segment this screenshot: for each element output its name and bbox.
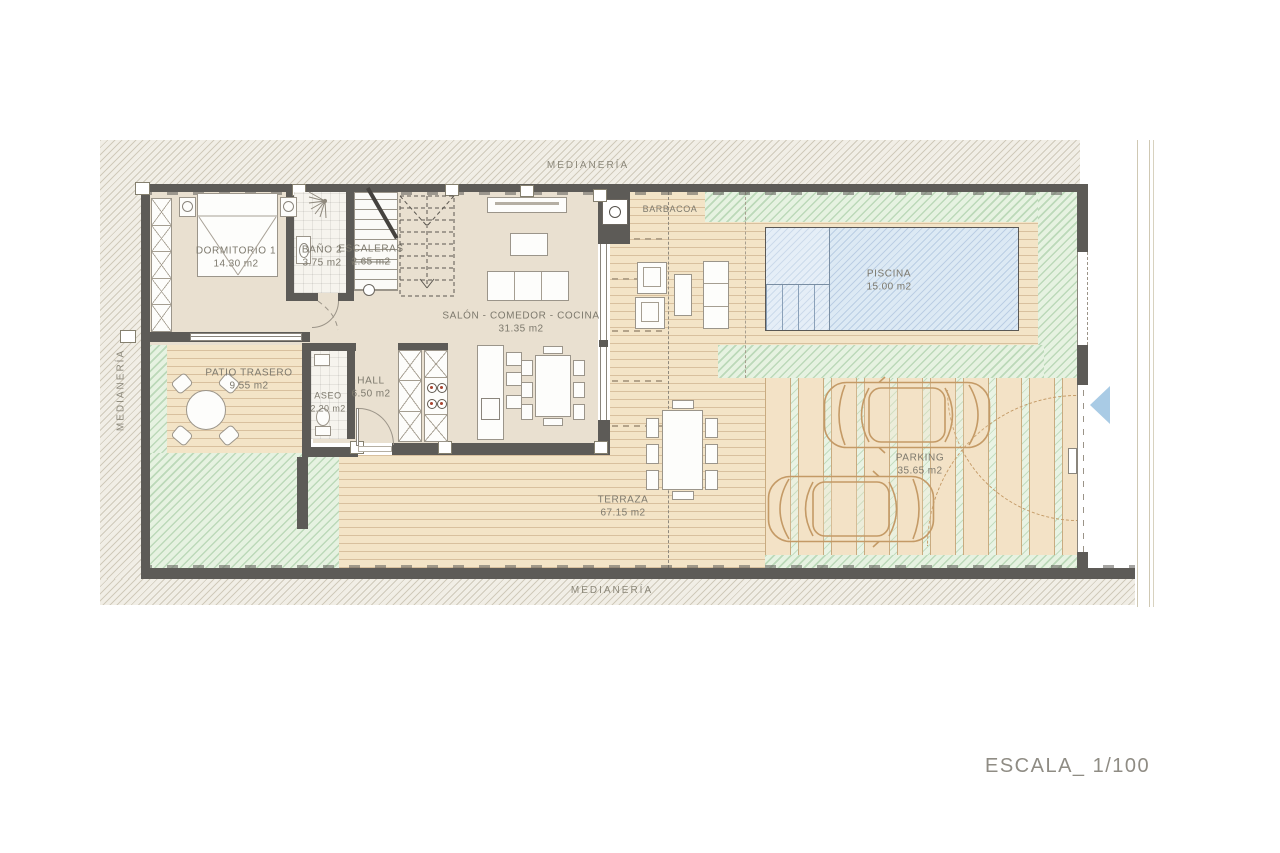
- wardrobe: [151, 198, 172, 332]
- floor-plan-canvas: DORMITORIO 1 14.30 m2 BAÑO 2 3.75 m2 ESC…: [0, 0, 1280, 853]
- room-name: PARKING: [896, 453, 944, 466]
- barbacoa-unit: [602, 199, 628, 225]
- room-label-escaleras: ESCALERAS 2.65 m2: [338, 244, 403, 269]
- room-area: 3.75 m2: [302, 257, 342, 270]
- wall-left: [141, 184, 150, 578]
- bar-stool: [506, 395, 522, 409]
- wardrobe-cell: [152, 305, 171, 331]
- outdoor-chair: [672, 400, 694, 409]
- room-label-hall: HALL 6.50 m2: [352, 376, 391, 401]
- room-label-aseo: ASEO 2.20 m2: [310, 390, 345, 415]
- wall-patio-spur: [297, 457, 308, 529]
- room-label-barbacoa: BARBACOA: [643, 203, 698, 216]
- kitchen-column: [424, 350, 448, 442]
- outdoor-chair: [705, 418, 718, 438]
- wall-bano-bottom: [286, 293, 318, 301]
- cabinet-cell: [399, 412, 421, 441]
- lounge-chair: [637, 262, 667, 294]
- room-label-salon: SALÓN - COMEDOR - COCINA 31.35 m2: [442, 311, 599, 336]
- garden-strip-top: [705, 192, 1077, 222]
- room-area: 67.15 m2: [598, 507, 649, 520]
- room-name: BAÑO 2: [302, 245, 342, 258]
- outdoor-dining-table: [662, 410, 703, 490]
- outdoor-chair: [672, 491, 694, 500]
- bar-stool: [506, 372, 522, 386]
- room-name: DORMITORIO 1: [196, 246, 276, 259]
- lamp-icon: [283, 201, 294, 212]
- room-area: 15.00 m2: [867, 281, 912, 294]
- toilet-tank: [315, 426, 331, 436]
- pool-shallow-zone: [766, 228, 830, 330]
- lamp-icon: [182, 201, 193, 212]
- room-name: BARBACOA: [643, 203, 698, 216]
- room-name: ESCALERAS: [338, 244, 403, 257]
- sofa: [487, 271, 569, 301]
- wall-bottom: [141, 568, 1135, 579]
- room-name: SALÓN - COMEDOR - COCINA: [442, 311, 599, 324]
- dining-chair: [543, 418, 563, 426]
- pillar: [593, 189, 607, 202]
- dining-chair: [573, 404, 585, 420]
- room-label-piscina: PISCINA 15.00 m2: [867, 269, 912, 294]
- parking-gate: [1077, 385, 1088, 552]
- room-label-terraza: TERRAZA 67.15 m2: [598, 495, 649, 520]
- outdoor-chair: [705, 444, 718, 464]
- dining-chair: [521, 360, 533, 376]
- garden-french-door: [1077, 252, 1088, 345]
- wall-kitchen-cap: [398, 343, 448, 350]
- nightstand: [179, 197, 196, 217]
- cabinet-cell: [425, 415, 447, 441]
- burner-icon: [437, 383, 447, 393]
- garden-strip-below-pool: [718, 345, 1044, 378]
- glass-mullion: [599, 340, 608, 347]
- room-name: PATIO TRASERO: [205, 368, 292, 381]
- glass-wall: [600, 244, 607, 420]
- wall-right-mid: [1077, 345, 1088, 385]
- dining-chair: [521, 404, 533, 420]
- cabinet-cell: [425, 351, 447, 378]
- wall-right-lower: [1077, 552, 1088, 568]
- entrance-arrow-icon: [1090, 386, 1110, 424]
- stove: [425, 378, 447, 415]
- wall-right-upper: [1077, 184, 1088, 252]
- deck-joint-line: [668, 192, 669, 568]
- coffee-table: [510, 233, 548, 256]
- kitchen-island: [477, 345, 504, 440]
- room-name: HALL: [352, 376, 391, 389]
- dining-chair: [573, 360, 585, 376]
- boundary-label-bottom: MEDIANERÍA: [571, 585, 653, 596]
- room-area: 14.30 m2: [196, 258, 276, 271]
- scale-label: ESCALA_ 1/100: [985, 755, 1150, 778]
- boundary-label-left: MEDIANERÍA: [116, 349, 127, 431]
- outdoor-chair: [646, 444, 659, 464]
- outdoor-chair: [646, 418, 659, 438]
- room-label-dormitorio1: DORMITORIO 1 14.30 m2: [196, 246, 276, 271]
- room-name: TERRAZA: [598, 495, 649, 508]
- tv-unit: [487, 197, 567, 213]
- pillar: [135, 182, 150, 195]
- dining-chair: [543, 346, 563, 354]
- room-area: 2.20 m2: [310, 402, 345, 415]
- room-area: 35.65 m2: [896, 465, 944, 478]
- room-name: ASEO: [310, 390, 345, 403]
- burner-icon: [427, 383, 437, 393]
- stairs-reference-circle: [363, 284, 375, 296]
- barbacoa-ring-icon: [609, 206, 621, 218]
- pillar: [445, 184, 459, 196]
- lot-boundary-line: [1153, 140, 1154, 607]
- outdoor-chair: [646, 470, 659, 490]
- room-label-parking: PARKING 35.65 m2: [896, 453, 944, 478]
- lounge-table: [674, 274, 692, 316]
- room-area: 31.35 m2: [442, 323, 599, 336]
- pillar: [520, 185, 534, 197]
- terraza-deck-south: [339, 455, 610, 568]
- boundary-label-top: MEDIANERÍA: [547, 160, 629, 171]
- lounge-chair: [635, 297, 665, 329]
- deck-joint-mark: [612, 380, 662, 382]
- cabinet-cell: [399, 351, 421, 381]
- dining-table: [535, 355, 571, 417]
- wall-south: [392, 443, 610, 455]
- dining-chair: [573, 382, 585, 398]
- room-area: 6.50 m2: [352, 388, 391, 401]
- kitchen-column: [398, 350, 422, 442]
- room-area: 9.55 m2: [205, 380, 292, 393]
- wardrobe-cell: [152, 279, 171, 306]
- pillar: [120, 330, 136, 343]
- burner-icon: [437, 399, 447, 409]
- entry-threshold: [358, 446, 392, 452]
- wardrobe-cell: [152, 252, 171, 279]
- wall-bottom-ticks: [141, 565, 1135, 568]
- outdoor-chair: [705, 470, 718, 490]
- wardrobe-cell: [152, 226, 171, 253]
- burner-icon: [427, 399, 437, 409]
- wardrobe-cell: [152, 199, 171, 226]
- room-label-patio: PATIO TRASERO 9.55 m2: [205, 368, 292, 393]
- wall-top: [141, 184, 1084, 192]
- island-sink: [481, 398, 500, 420]
- pillar: [594, 441, 608, 454]
- dining-chair: [521, 382, 533, 398]
- pool-steps: [766, 285, 829, 330]
- room-label-bano2: BAÑO 2 3.75 m2: [302, 245, 342, 270]
- bar-stool: [506, 352, 522, 366]
- lot-boundary-line: [1149, 140, 1150, 607]
- wall-bano-bottom: [338, 293, 354, 301]
- pillar: [438, 441, 452, 454]
- gate-handle: [1068, 448, 1077, 474]
- deck-joint-mark: [612, 330, 662, 332]
- dormitorio-window: [190, 333, 302, 341]
- rear-garden: [150, 453, 339, 568]
- lot-boundary-line: [1137, 140, 1138, 607]
- patio-table: [186, 390, 226, 430]
- lounge-sofa: [703, 261, 729, 329]
- room-name: PISCINA: [867, 269, 912, 282]
- deck-joint-line: [745, 192, 746, 378]
- room-area: 2.65 m2: [338, 256, 403, 269]
- cabinet-cell: [399, 381, 421, 411]
- nightstand: [280, 197, 297, 217]
- aseo-sink: [314, 354, 330, 366]
